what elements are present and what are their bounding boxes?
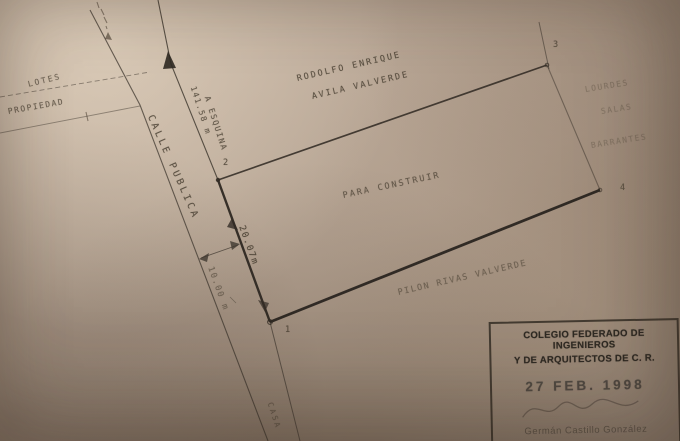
corner2-marker: [216, 178, 220, 182]
signature-scribble-icon: [514, 389, 655, 426]
small-tick-near-corner1: [230, 297, 236, 303]
corner-label-1: 1: [285, 325, 290, 335]
road-width-arrowhead-left-icon: [199, 253, 209, 262]
corner-label-2: 2: [223, 158, 228, 168]
road-direction-arrow-icon: [163, 51, 176, 69]
corner-label-3: 3: [553, 40, 558, 50]
illegible-ink-marks: [97, 2, 107, 29]
road-width-arrowhead-right-icon: [230, 241, 240, 250]
frontage-arrowhead-lower-icon: [258, 300, 269, 312]
small-arrowhead-top-left-icon: [105, 32, 112, 40]
scanned-survey-plan: CALLE PUBLICA 141.58 m A ESQUINA 20.07m …: [0, 0, 680, 441]
corner3-tie-line: [539, 22, 549, 69]
stamp-organization-line2: Y DE ARQUITECTOS DE C. R.: [491, 352, 677, 367]
stamp-organization-line1: COLEGIO FEDERADO DE INGENIEROS: [491, 327, 677, 353]
approval-stamp: COLEGIO FEDERADO DE INGENIEROS Y DE ARQU…: [489, 318, 680, 441]
lot-leader-line-upper: [0, 72, 150, 97]
corner-label-4: 4: [620, 183, 625, 193]
parcel-south-edge: [270, 190, 600, 322]
